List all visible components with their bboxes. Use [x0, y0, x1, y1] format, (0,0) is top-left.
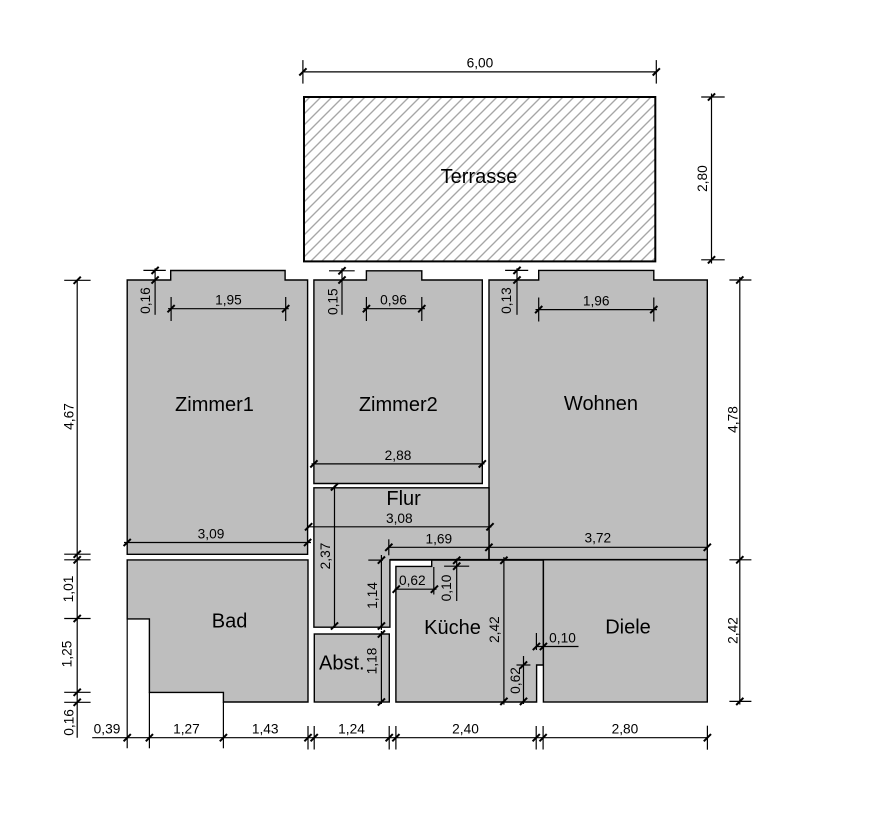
- svg-text:Wohnen: Wohnen: [564, 393, 638, 415]
- svg-text:1,43: 1,43: [252, 722, 279, 737]
- svg-text:Bad: Bad: [212, 610, 248, 632]
- svg-text:1,01: 1,01: [61, 576, 76, 603]
- svg-text:0,16: 0,16: [61, 709, 76, 736]
- svg-text:2,80: 2,80: [695, 165, 710, 192]
- svg-text:Diele: Diele: [605, 617, 651, 639]
- svg-text:2,88: 2,88: [385, 448, 412, 463]
- svg-text:1,95: 1,95: [215, 292, 242, 307]
- svg-text:Flur: Flur: [386, 488, 421, 510]
- svg-text:0,62: 0,62: [508, 667, 523, 694]
- svg-text:1,18: 1,18: [364, 647, 379, 674]
- svg-text:1,14: 1,14: [365, 582, 380, 609]
- svg-text:1,25: 1,25: [60, 640, 75, 667]
- svg-text:2,80: 2,80: [612, 722, 639, 737]
- svg-text:0,16: 0,16: [138, 287, 153, 314]
- svg-text:2,42: 2,42: [487, 616, 502, 643]
- svg-text:2,37: 2,37: [318, 543, 333, 570]
- svg-text:3,09: 3,09: [198, 527, 225, 542]
- svg-text:Zimmer1: Zimmer1: [175, 394, 254, 416]
- svg-text:1,27: 1,27: [173, 722, 200, 737]
- svg-text:0,15: 0,15: [326, 288, 341, 315]
- svg-text:1,24: 1,24: [338, 722, 365, 737]
- svg-text:1,69: 1,69: [425, 531, 452, 546]
- svg-text:0,13: 0,13: [499, 287, 514, 314]
- svg-text:0,62: 0,62: [399, 573, 426, 588]
- svg-text:2,42: 2,42: [726, 617, 741, 644]
- svg-text:1,96: 1,96: [583, 293, 610, 308]
- svg-text:2,40: 2,40: [452, 722, 479, 737]
- svg-text:Küche: Küche: [424, 617, 481, 639]
- svg-text:0,39: 0,39: [94, 722, 121, 737]
- svg-text:Abst.: Abst.: [319, 653, 365, 675]
- svg-text:0,10: 0,10: [549, 631, 576, 646]
- svg-text:Zimmer2: Zimmer2: [359, 394, 438, 416]
- svg-text:3,72: 3,72: [584, 531, 611, 546]
- svg-text:Terrasse: Terrasse: [441, 166, 518, 188]
- svg-text:4,67: 4,67: [61, 403, 76, 430]
- svg-text:0,96: 0,96: [380, 292, 407, 307]
- svg-text:4,78: 4,78: [726, 406, 741, 433]
- svg-text:0,10: 0,10: [439, 574, 454, 601]
- svg-text:6,00: 6,00: [467, 56, 494, 71]
- svg-text:3,08: 3,08: [386, 511, 413, 526]
